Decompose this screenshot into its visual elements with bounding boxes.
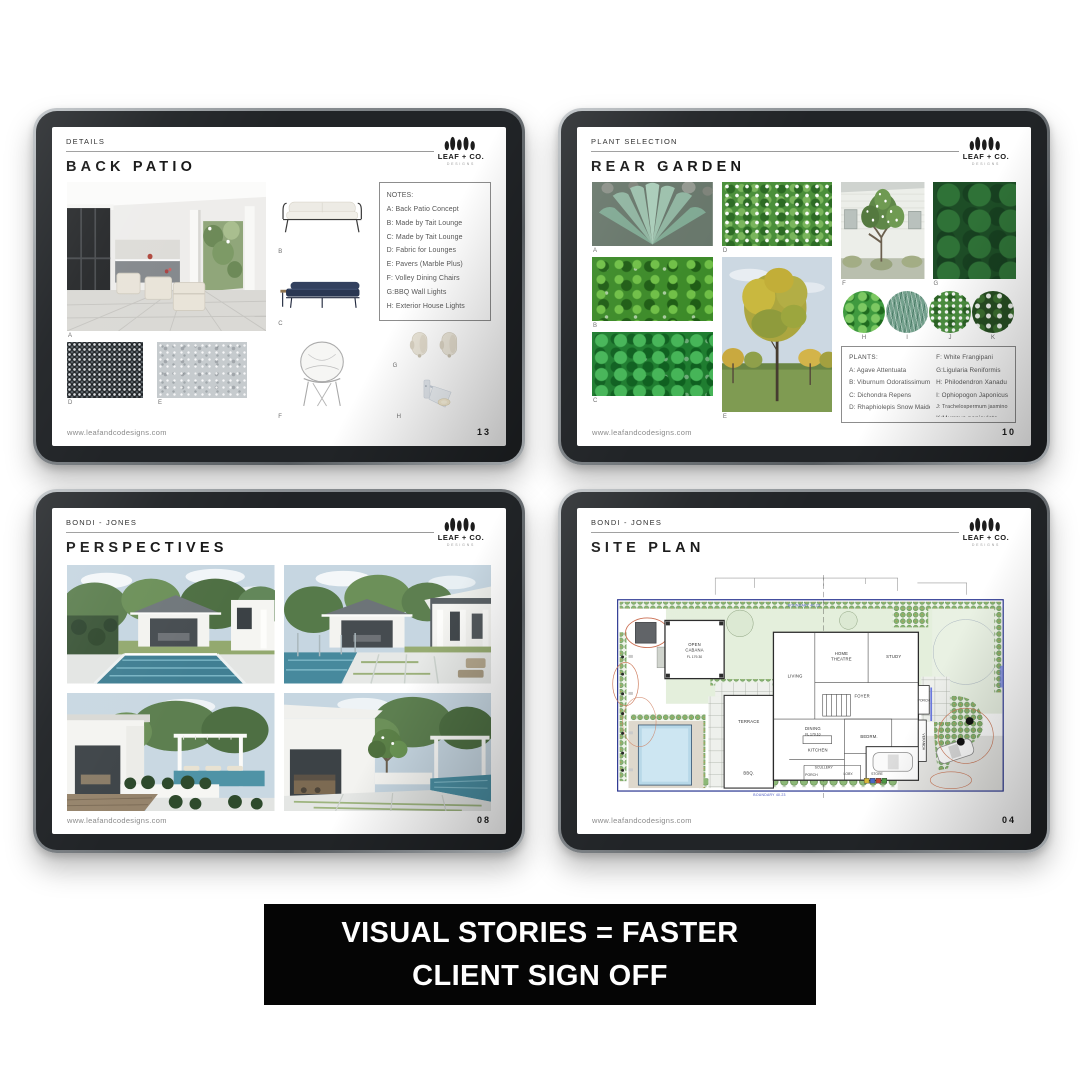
header-rule <box>66 532 434 533</box>
footer-url: www.leafandcodesigns.com <box>67 428 167 437</box>
brand-tagline: DESIGNS <box>428 543 494 547</box>
image-label: G <box>393 363 491 369</box>
plant-item: H: Philodendron Xanadu <box>936 377 1008 390</box>
brand-logo: LEAF + CO. DESIGNS <box>953 136 1019 166</box>
room-label: KITCHEN <box>808 748 828 753</box>
tablet-plant-selection: PLANT SELECTION REAR GARDEN LEAF + CO. <box>558 108 1050 465</box>
room-label: STORE <box>871 772 883 776</box>
plant-item: I: Ophiopogon Japonicus <box>936 390 1008 403</box>
white-lounge-image <box>277 184 367 247</box>
tablet-bezel: BONDI - JONES SITE PLAN LEAF + CO. DE <box>561 492 1047 850</box>
room-label: PORCH <box>918 698 931 702</box>
headline-line-1: VISUAL STORIES = FASTER <box>341 912 738 954</box>
note-item: A: Back Patio Concept <box>387 203 483 217</box>
slide-plant-selection: PLANT SELECTION REAR GARDEN LEAF + CO. <box>577 127 1031 446</box>
room-label: PORCH <box>805 773 818 777</box>
tablet-bezel: DETAILS BACK PATIO LEAF + CO. DESIGNS <box>36 111 522 462</box>
brand-name: LEAF + CO. <box>953 152 1019 161</box>
trees-logo-icon <box>966 136 1006 151</box>
plant-item: G:Ligularia Reniformis <box>936 365 1008 378</box>
note-item: D: Fabric for Lounges <box>387 244 483 258</box>
marketing-graphic: DETAILS BACK PATIO LEAF + CO. DESIGNS <box>0 0 1080 1080</box>
tablet-bezel: BONDI - JONES PERSPECTIVES LEAF + CO. <box>36 492 522 850</box>
room-label: FOYER <box>854 693 869 698</box>
room-label: SCULLERY <box>815 765 834 769</box>
plant-image-trachelospermum <box>929 291 971 333</box>
room-label: CABANA <box>685 648 703 653</box>
render-bbq-pergola <box>284 693 492 812</box>
room-label: FL 179.30 <box>687 655 702 659</box>
exterior-light-image <box>404 376 466 412</box>
image-label: A <box>68 333 266 339</box>
brand-logo: LEAF + CO. DESIGNS <box>428 136 494 166</box>
render-pool-front <box>67 565 275 684</box>
room-label: FL 179.10 <box>805 732 820 736</box>
tablet-site-plan: BONDI - JONES SITE PLAN LEAF + CO. DE <box>558 489 1050 853</box>
trees-logo-icon <box>966 517 1006 532</box>
wall-lights-image <box>393 329 477 361</box>
image-label: D <box>68 400 143 406</box>
trees-logo-icon <box>441 136 481 151</box>
notes-box: NOTES: A: Back Patio Concept B: Made by … <box>379 182 491 321</box>
plant-image-philodendron <box>843 291 885 333</box>
header-rule <box>591 151 959 152</box>
boundary-label: BOUNDARY 40.23 <box>788 604 820 608</box>
image-label: C <box>278 321 367 327</box>
room-label: HOME <box>835 651 848 656</box>
brand-name: LEAF + CO. <box>428 533 494 542</box>
plant-item: F: White Frangipani <box>936 352 1008 365</box>
page-number: 10 <box>1002 427 1016 437</box>
note-item: H: Exterior House Lights <box>387 300 483 314</box>
room-label: BBQ. <box>743 770 754 775</box>
fabric-swatch-image <box>67 342 143 398</box>
render-pool-pavers <box>284 565 492 684</box>
plant-item: C: Dichondra Repens <box>849 390 930 403</box>
headline-line-2: CLIENT SIGN OFF <box>412 955 668 997</box>
brand-logo: LEAF + CO. DESIGNS <box>428 517 494 547</box>
plant-image-ophiopogon <box>886 291 928 333</box>
page-number: 04 <box>1002 815 1016 825</box>
plant-image-agave <box>592 182 713 246</box>
tablet-back-patio: DETAILS BACK PATIO LEAF + CO. DESIGNS <box>33 108 525 465</box>
room-label: STUDY <box>886 654 901 659</box>
plant-item: K:Murraya paniculata <box>936 413 1008 417</box>
plant-item: D: Rhaphiolepis Snow Maiden <box>849 402 930 415</box>
notes-title: NOTES: <box>387 189 483 203</box>
image-label: D <box>723 248 832 254</box>
note-item: E: Pavers (Marble Plus) <box>387 258 483 272</box>
footer-url: www.leafandcodesigns.com <box>67 816 167 825</box>
brand-name: LEAF + CO. <box>953 533 1019 542</box>
image-label: E <box>158 400 247 406</box>
site-plan-drawing: OPEN CABANA FL 179.30 LIVING HOME THEATR… <box>591 563 1017 811</box>
paver-swatch-image <box>157 342 247 398</box>
image-label: I <box>886 335 928 341</box>
trees-logo-icon <box>441 517 481 532</box>
slide-back-patio: DETAILS BACK PATIO LEAF + CO. DESIGNS <box>52 127 506 446</box>
header-rule <box>591 532 959 533</box>
plants-title: PLANTS: <box>849 352 930 365</box>
slide-site-plan: BONDI - JONES SITE PLAN LEAF + CO. DE <box>577 508 1031 834</box>
image-label: G <box>934 281 1016 287</box>
headline-banner: VISUAL STORIES = FASTER CLIENT SIGN OFF <box>264 904 816 1005</box>
brand-name: LEAF + CO. <box>428 152 494 161</box>
plant-image-murraya <box>972 291 1014 333</box>
boundary-label: BOUNDARY 40.23 <box>753 793 785 797</box>
image-label: H <box>843 335 885 341</box>
tablet-perspectives: BONDI - JONES PERSPECTIVES LEAF + CO. <box>33 489 525 853</box>
plant-image-dichondra <box>592 332 713 396</box>
image-label: F <box>842 281 924 287</box>
brand-tagline: DESIGNS <box>428 162 494 166</box>
room-label: TERRACE <box>738 719 759 724</box>
plant-image-ginko <box>722 257 832 412</box>
image-label: E <box>723 414 832 420</box>
plant-item: E: Ginko Biloba <box>849 415 930 417</box>
room-label: DINING <box>805 726 821 731</box>
plant-image-viburnum <box>592 257 713 321</box>
image-label: B <box>278 249 367 255</box>
room-label: BEDRM. <box>860 734 877 739</box>
room-label: OPEN <box>688 642 701 647</box>
image-label: H <box>397 414 491 420</box>
patio-concept-image <box>67 182 266 331</box>
slide-perspectives: BONDI - JONES PERSPECTIVES LEAF + CO. <box>52 508 506 834</box>
brand-tagline: DESIGNS <box>953 162 1019 166</box>
note-item: B: Made by Tait Lounge <box>387 217 483 231</box>
plant-image-frangipani <box>841 182 924 279</box>
image-label: B <box>593 323 713 329</box>
room-label: LIVING <box>788 674 803 679</box>
room-label: THEATRE <box>831 656 852 661</box>
note-item: G:BBQ Wall Lights <box>387 286 483 300</box>
page-number: 13 <box>477 427 491 437</box>
brand-tagline: DESIGNS <box>953 543 1019 547</box>
footer-url: www.leafandcodesigns.com <box>592 816 692 825</box>
plant-item: J: Trachelospermum jasminoides <box>936 402 1008 413</box>
room-label: VERANDA <box>921 733 925 750</box>
room-label: LOBY. <box>844 772 854 776</box>
tablet-bezel: PLANT SELECTION REAR GARDEN LEAF + CO. <box>561 111 1047 462</box>
note-item: C: Made by Tait Lounge <box>387 231 483 245</box>
plant-image-rhaphiolepis <box>722 182 832 246</box>
image-label: K <box>972 335 1014 341</box>
plant-item: B: Viburnum Odoratissimum <box>849 377 930 390</box>
dining-chair-sketch <box>285 336 359 412</box>
page-number: 08 <box>477 815 491 825</box>
plants-box: PLANTS: A: Agave Attentuata B: Viburnum … <box>841 346 1016 423</box>
navy-lounge-image <box>277 266 367 319</box>
plant-image-ligularia <box>933 182 1016 279</box>
note-item: F: Volley Dining Chairs <box>387 272 483 286</box>
image-label: J <box>929 335 971 341</box>
header-rule <box>66 151 434 152</box>
image-label: A <box>593 248 713 254</box>
footer-url: www.leafandcodesigns.com <box>592 428 692 437</box>
plant-item: A: Agave Attentuata <box>849 365 930 378</box>
image-label: F <box>278 414 367 420</box>
brand-logo: LEAF + CO. DESIGNS <box>953 517 1019 547</box>
image-label: C <box>593 398 713 404</box>
render-pergola-deck <box>67 693 275 812</box>
